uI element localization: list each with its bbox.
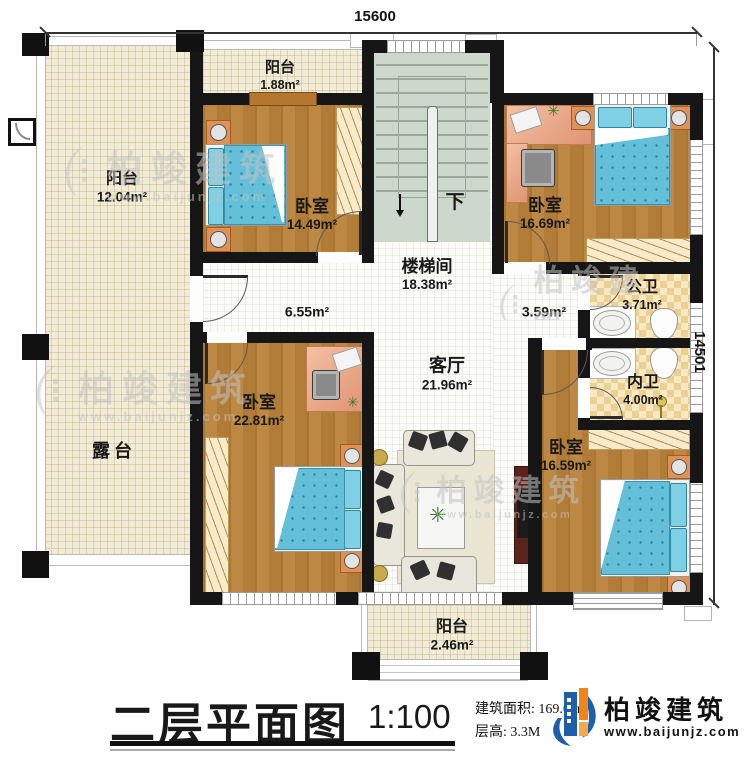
watermark-text: 柏竣建筑 xyxy=(436,466,586,510)
wall-bath-divider xyxy=(578,338,703,348)
nightstand xyxy=(340,549,364,573)
wardrobe xyxy=(205,437,229,593)
balcony-left-floor xyxy=(44,44,190,560)
wall-bath-bottom xyxy=(578,420,703,430)
pillow xyxy=(670,483,687,527)
lamp xyxy=(575,110,591,126)
watermark-logo-icon xyxy=(55,143,99,201)
label-balcony-top: 阳台 1.88m² xyxy=(260,59,300,93)
label-stairwell: 楼梯间 18.38m² xyxy=(402,256,453,294)
nightstand xyxy=(571,106,595,130)
legend-arc xyxy=(15,123,30,140)
door-opening-balcony-left xyxy=(190,276,203,322)
dim-ext xyxy=(696,34,697,46)
watermark-logo-icon xyxy=(492,281,527,320)
wardrobe xyxy=(336,107,363,215)
build-area-label: 建筑面积: xyxy=(475,702,535,717)
watermark-url: www.baijunjz.com xyxy=(78,409,254,424)
wall-top-bedroom-tl-a xyxy=(203,93,249,105)
plan-scale: 1:100 xyxy=(368,698,451,736)
bed-sheet xyxy=(275,468,309,548)
watermark-url: www.baijunjz.com xyxy=(436,508,586,521)
floor-height-value: 3.3M xyxy=(510,725,540,740)
bedroom-tr-top-window xyxy=(593,93,668,105)
watermark-text: 柏竣建筑 xyxy=(534,256,673,320)
pillow xyxy=(344,470,361,509)
brand-logo-icon xyxy=(544,684,602,750)
watermark-clip: 柏竣建筑 www.baijunjz.com xyxy=(492,254,703,320)
door-opening-bath-inner xyxy=(578,378,590,418)
title-underline-2 xyxy=(110,749,455,751)
stair-window xyxy=(387,40,465,53)
title-underline xyxy=(110,741,455,746)
door-opening-bedroom-bl xyxy=(207,332,247,343)
plant: ✳ xyxy=(347,395,359,409)
dim-ext xyxy=(45,34,46,46)
watermark-text: 柏竣建筑 xyxy=(78,360,254,412)
bedroom-tr-right-window xyxy=(690,140,703,235)
nightstand xyxy=(667,455,691,479)
label-bath-inner: 内卫 4.00m² xyxy=(623,373,663,409)
label-living: 客厅 21.96m² xyxy=(422,354,472,393)
column xyxy=(520,652,548,680)
bed-sheet xyxy=(601,481,635,573)
wall-stair-left xyxy=(362,45,374,263)
stair-divider xyxy=(427,106,438,242)
lamp xyxy=(344,448,360,464)
pillow xyxy=(598,107,632,128)
watermark: 柏竣建筑 www.baijunjz.com xyxy=(55,140,283,204)
lamp xyxy=(344,553,360,569)
column xyxy=(22,334,49,360)
wall-left xyxy=(190,45,203,605)
balcony-top-railing xyxy=(203,40,362,50)
stair-tread xyxy=(376,78,488,80)
bed-sheet xyxy=(595,128,668,158)
watermark-logo-icon xyxy=(392,469,429,518)
floor-height-line: 层高: 3.3M xyxy=(475,721,540,741)
pillow xyxy=(670,528,687,572)
wall-top-bedroom-tl-b xyxy=(315,93,362,105)
watermark: 柏竣建筑 www.baijunjz.com xyxy=(392,466,586,520)
balcony-bottom-railing xyxy=(368,659,528,681)
label-bedroom-tr: 卧室 16.69m² xyxy=(520,195,570,233)
wall-bedroom-bl-right xyxy=(362,332,374,605)
floor-height-label: 层高: xyxy=(475,725,507,740)
living-balcony-door xyxy=(358,592,502,605)
lamp xyxy=(210,231,227,248)
plant: ✳ xyxy=(547,104,560,119)
stair-down-label: 下 xyxy=(445,191,464,215)
legend-symbol xyxy=(8,118,36,146)
label-terrace: 露台 xyxy=(92,440,136,463)
balcony-top-threshold xyxy=(249,92,317,106)
right-dimension-line xyxy=(713,48,715,605)
label-balcony-bottom: 阳台 2.46m² xyxy=(431,618,474,655)
stair-down-arrowhead xyxy=(396,210,404,217)
lamp xyxy=(671,459,687,475)
computer-monitor xyxy=(521,149,555,187)
balcony-left-side-railing xyxy=(36,44,46,556)
pillow xyxy=(633,107,667,128)
cushion xyxy=(376,522,393,539)
top-dimension-label: 15600 xyxy=(340,8,410,25)
exterior-sill xyxy=(684,606,712,621)
floor-plan: 15600 14501 下 xyxy=(0,0,750,759)
watermark: 柏竣建筑 www.baijunjz.com xyxy=(492,256,672,320)
stair-tread xyxy=(376,64,488,66)
watermark-url: www.baijunjz.com xyxy=(107,189,283,204)
stair-tread xyxy=(376,92,488,94)
right-dimension-label: 14501 xyxy=(691,322,708,382)
watermark-logo-icon xyxy=(26,363,70,421)
column xyxy=(22,551,49,578)
stair-down-arrow xyxy=(399,194,401,210)
brand-website: www.baijunjz.com xyxy=(604,724,740,739)
pillow xyxy=(344,510,361,549)
computer-monitor xyxy=(312,370,340,400)
wall-bedroom-tr-left xyxy=(492,103,504,274)
top-dimension-line xyxy=(45,32,697,34)
lamp xyxy=(671,110,687,126)
label-bedroom-tl: 卧室 14.49m² xyxy=(287,196,337,234)
bedroom-br-french-window xyxy=(573,592,663,610)
nightstand xyxy=(206,227,231,252)
watermark: 柏竣建筑 www.baijunjz.com xyxy=(26,360,254,424)
bedroom-bl-window xyxy=(222,592,336,605)
watermark-text: 柏竣建筑 xyxy=(107,140,283,192)
lamp xyxy=(210,124,227,141)
terrace-bottom-railing xyxy=(44,554,190,566)
nightstand xyxy=(340,444,364,468)
door-opening-bedroom-br xyxy=(542,338,586,350)
balcony-left-top-railing xyxy=(44,36,177,46)
column xyxy=(352,652,380,680)
label-hall-left: 6.55m² xyxy=(285,303,329,321)
bedroom-br-right-window xyxy=(690,483,703,573)
brand-name: 柏竣建筑 xyxy=(604,690,728,727)
